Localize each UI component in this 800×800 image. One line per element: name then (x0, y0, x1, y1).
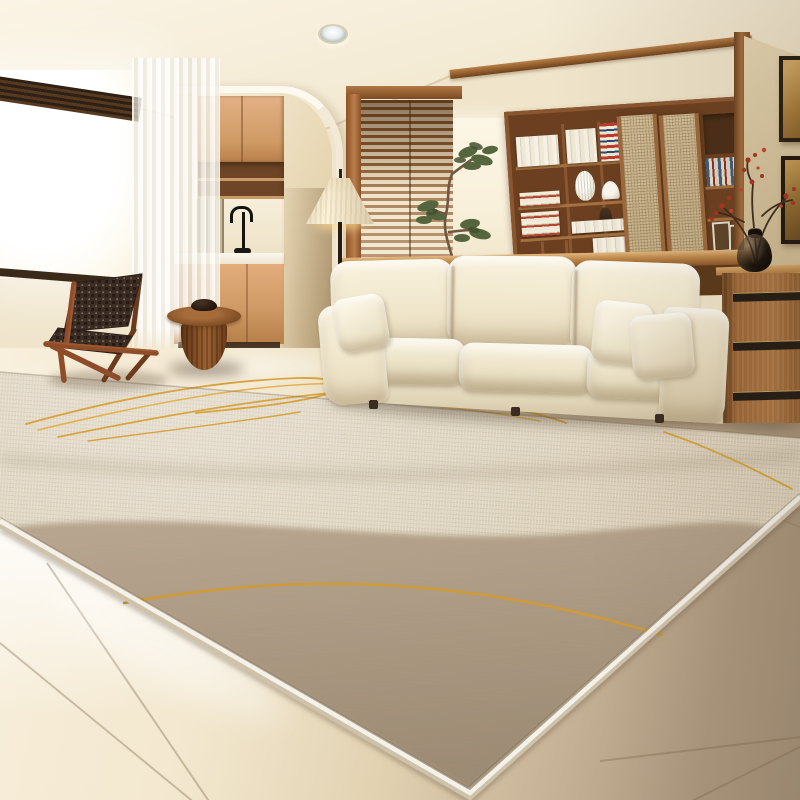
throw-pillow (628, 311, 695, 380)
sofa (325, 252, 725, 432)
back-cushion (447, 255, 578, 346)
seat-cushion (458, 342, 593, 393)
throw-pillow (331, 292, 392, 354)
sofa-foot (369, 400, 378, 409)
lamp-finial (339, 169, 342, 179)
sofa-foot (511, 407, 520, 416)
living-room-scene (0, 0, 800, 800)
sofa-foot (655, 414, 664, 423)
